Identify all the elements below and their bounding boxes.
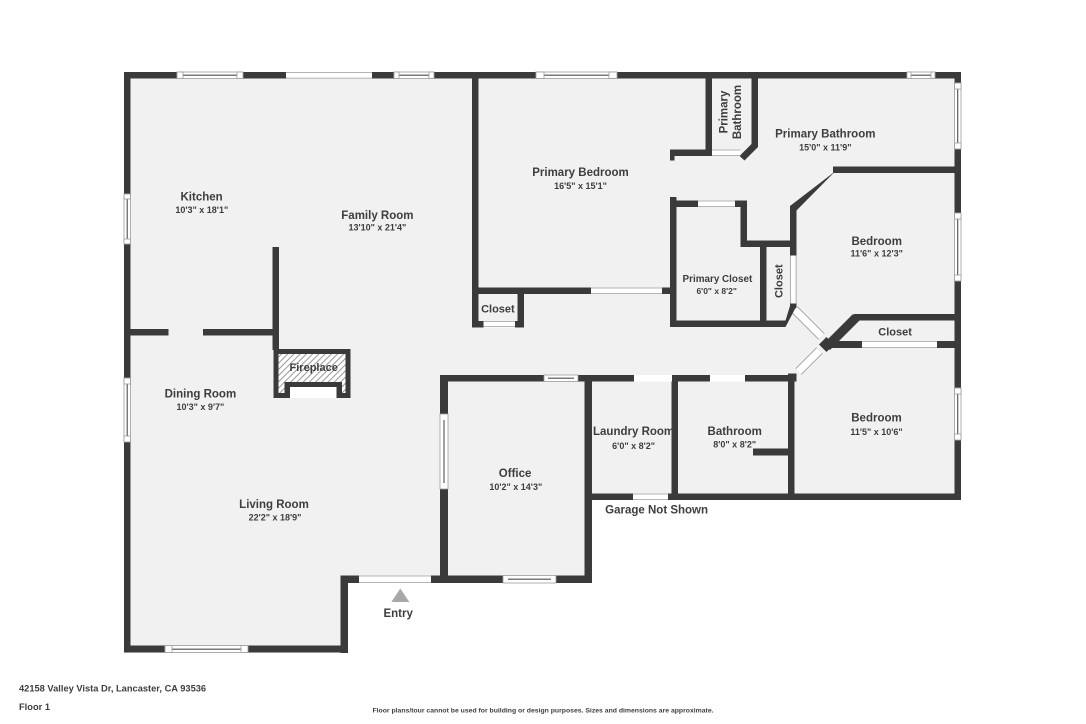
svg-text:Bedroom: Bedroom (851, 413, 901, 425)
svg-text:Primary Closet: Primary Closet (683, 274, 753, 285)
svg-text:Bedroom: Bedroom (851, 236, 901, 248)
svg-text:Primary Bathroom: Primary Bathroom (775, 129, 875, 141)
svg-text:Primary: Primary (719, 90, 731, 133)
svg-text:Kitchen: Kitchen (181, 192, 223, 204)
svg-text:Family Room: Family Room (341, 210, 413, 222)
svg-text:42158 Valley Vista Dr, Lancast: 42158 Valley Vista Dr, Lancaster, CA 935… (19, 684, 206, 694)
svg-text:Fireplace: Fireplace (290, 362, 338, 374)
svg-text:6'0" x 8'2": 6'0" x 8'2" (612, 441, 655, 451)
svg-text:Dining Room: Dining Room (165, 389, 237, 401)
svg-text:16'5" x 15'1": 16'5" x 15'1" (554, 181, 607, 191)
svg-text:13'10" x 21'4": 13'10" x 21'4" (348, 223, 406, 233)
svg-text:Primary Bedroom: Primary Bedroom (532, 167, 629, 179)
svg-text:Laundry Room: Laundry Room (593, 426, 674, 438)
svg-text:Bathroom: Bathroom (732, 85, 744, 139)
svg-text:Bathroom: Bathroom (708, 426, 762, 438)
svg-text:Closet: Closet (878, 327, 912, 339)
svg-text:Entry: Entry (383, 608, 413, 620)
svg-text:15'0" x 11'9": 15'0" x 11'9" (799, 143, 851, 153)
svg-text:Garage Not Shown: Garage Not Shown (605, 505, 708, 517)
svg-text:Floor 1: Floor 1 (19, 702, 50, 712)
svg-text:Floor plans/tour cannot be use: Floor plans/tour cannot be used for buil… (372, 708, 713, 715)
svg-text:10'3" x 9'7": 10'3" x 9'7" (176, 402, 224, 412)
svg-text:Closet: Closet (774, 264, 786, 298)
svg-text:11'5" x 10'6": 11'5" x 10'6" (850, 427, 902, 437)
svg-text:Office: Office (499, 468, 532, 480)
svg-text:6'0" x 8'2": 6'0" x 8'2" (696, 286, 736, 296)
svg-text:11'6" x 12'3": 11'6" x 12'3" (851, 249, 903, 259)
svg-text:Living Room: Living Room (239, 499, 309, 511)
svg-text:8'0" x 8'2": 8'0" x 8'2" (713, 440, 756, 450)
svg-text:22'2" x 18'9": 22'2" x 18'9" (249, 513, 302, 523)
svg-text:10'2" x 14'3": 10'2" x 14'3" (489, 482, 542, 492)
svg-text:10'3" x 18'1": 10'3" x 18'1" (175, 205, 228, 215)
svg-text:Closet: Closet (481, 304, 515, 316)
